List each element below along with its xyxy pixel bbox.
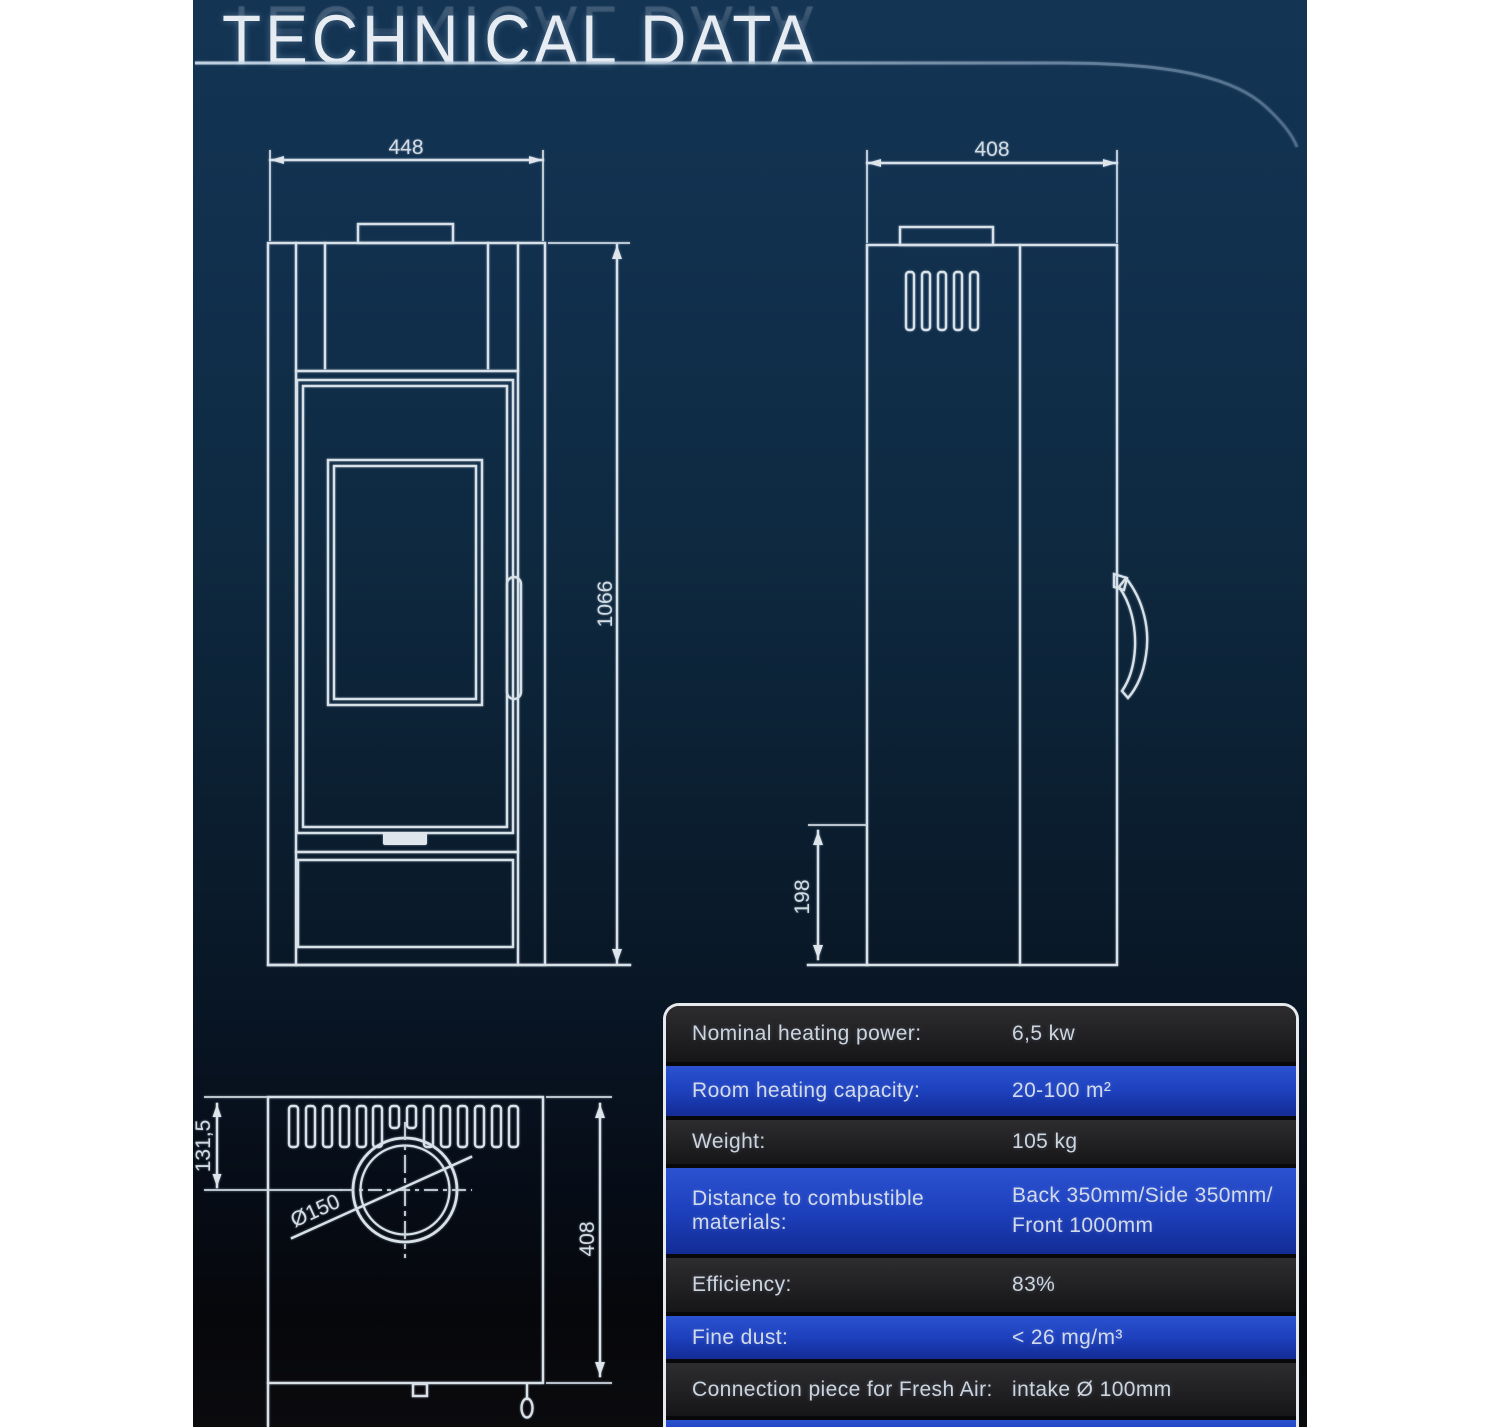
- side-vent-slots: [906, 272, 978, 330]
- spec-value: 105 kg: [1012, 1130, 1296, 1154]
- spec-value-line1: Back 350mm/Side 350mm/: [1012, 1181, 1296, 1211]
- ash-drawer-handle: [383, 832, 427, 845]
- flue-collar-side: [900, 227, 993, 245]
- front-width-dim: 448: [388, 136, 423, 159]
- top-vent-slots: [289, 1106, 518, 1147]
- top-view-drawing: Ø150 131,5 408: [192, 1097, 612, 1427]
- header-rule-swoosh: [195, 63, 1297, 147]
- side-view-drawing: 408 198: [791, 138, 1147, 965]
- spec-label: Efficiency:: [666, 1273, 1012, 1297]
- side-width-dim: 408: [974, 138, 1009, 161]
- spec-value: 20-100 m²: [1012, 1079, 1296, 1103]
- stove-body-side: [867, 245, 1117, 965]
- spec-value: intake Ø 100mm: [1012, 1378, 1296, 1402]
- door-handle-side: [1114, 574, 1147, 698]
- table-row: Connection piece for Fresh Air: intake Ø…: [666, 1363, 1296, 1416]
- spec-value: < 26 mg/m³: [1012, 1326, 1296, 1350]
- stove-body-front: [268, 243, 545, 965]
- spec-value: Back 350mm/Side 350mm/ Front 1000mm: [1012, 1181, 1296, 1241]
- base-panel-front: [298, 860, 513, 947]
- spec-label: Room heating capacity:: [666, 1079, 1012, 1103]
- spec-table: Nominal heating power: 6,5 kw Room heati…: [663, 1003, 1299, 1427]
- side-base-height-dim: 198: [791, 879, 814, 914]
- flue-offset-dim: 131,5: [192, 1120, 215, 1173]
- table-row: Room heating capacity: 20-100 m²: [666, 1066, 1296, 1116]
- spec-label: Connection piece for Fresh Air:: [666, 1378, 1012, 1402]
- table-row: Fine dust: < 26 mg/m³: [666, 1316, 1296, 1359]
- spec-value: 83%: [1012, 1273, 1296, 1297]
- flue-collar-front: [358, 224, 453, 243]
- front-view-drawing: 448 1066: [268, 136, 630, 965]
- spec-label: Weight:: [666, 1130, 1012, 1154]
- rear-connector-detail: [413, 1384, 427, 1396]
- table-row: Distance to combustible materials: Back …: [666, 1168, 1296, 1254]
- door-glass: [328, 460, 482, 705]
- top-depth-dim: 408: [576, 1221, 599, 1256]
- table-row: Nominal heating power: 6,5 kw: [666, 1006, 1296, 1062]
- cable-ring-detail: [522, 1399, 533, 1418]
- front-height-dim: 1066: [594, 581, 617, 628]
- table-row: [666, 1420, 1296, 1427]
- spec-label: Nominal heating power:: [666, 1022, 1012, 1046]
- flue-diameter-dim: Ø150: [287, 1190, 343, 1232]
- spec-label: Fine dust:: [666, 1326, 1012, 1350]
- stove-door: [297, 380, 513, 833]
- spec-value-line2: Front 1000mm: [1012, 1211, 1296, 1241]
- spec-label: Distance to combustible materials:: [666, 1187, 1012, 1235]
- table-row: Weight: 105 kg: [666, 1120, 1296, 1164]
- table-row: Efficiency: 83%: [666, 1258, 1296, 1312]
- spec-value: 6,5 kw: [1012, 1022, 1296, 1046]
